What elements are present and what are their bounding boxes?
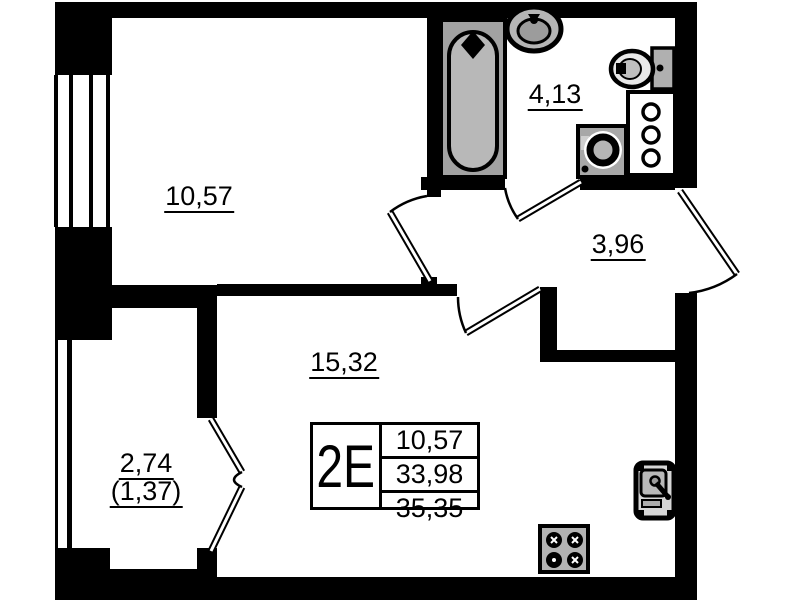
wall-balcony-bottom	[110, 569, 197, 577]
shelf-column-icon	[628, 92, 675, 175]
wall-left-top-block	[55, 2, 112, 75]
floor-plan: 10,57 4,13 3,96 15,32 2,74 (1,37) 2E 10,…	[0, 0, 799, 600]
room-label-living: 15,32	[309, 349, 379, 379]
wall-bedroom-bathroom	[427, 14, 441, 197]
bathroom-door	[505, 182, 581, 219]
walls	[55, 2, 697, 600]
bathtub-icon	[441, 20, 505, 177]
room-label-bedroom: 10,57	[164, 183, 234, 213]
room-label-balcony-reduced: (1,37)	[110, 478, 183, 508]
unit-area-values: 10,57 33,98 35,35	[382, 425, 477, 507]
wall-top	[55, 2, 697, 18]
wall-right-lower	[675, 293, 697, 600]
washing-machine-icon	[578, 126, 626, 177]
room-label-bathroom: 4,13	[528, 81, 583, 111]
unit-area-living-rooms: 10,57	[382, 425, 477, 456]
wall-left-bottom-block	[55, 548, 110, 600]
kitchen-sink-icon	[636, 463, 674, 518]
wall-hall-living-vertical	[540, 287, 557, 362]
unit-area-total: 35,35	[382, 490, 477, 524]
balcony-glazing	[55, 340, 72, 548]
living-room-door	[458, 289, 540, 333]
unit-type-label: 2E	[317, 432, 376, 501]
unit-area-without-balcony: 33,98	[382, 456, 477, 490]
unit-type-cell: 2E	[313, 425, 382, 507]
wall-hall-living-horizontal	[557, 350, 675, 362]
wall-balcony-living-upper	[197, 297, 217, 418]
wall-right-upper	[675, 2, 697, 188]
room-label-hallway: 3,96	[591, 231, 646, 261]
wall-bottom	[55, 577, 697, 600]
wall-left-mid-block	[55, 227, 112, 340]
toilet-icon	[611, 48, 674, 89]
wash-basin-icon	[507, 7, 561, 51]
entrance-door	[680, 191, 737, 293]
stove-icon	[540, 526, 588, 572]
unit-summary-table: 2E 10,57 33,98 35,35	[310, 422, 480, 510]
balcony-french-door	[211, 419, 242, 551]
bedroom-window	[54, 75, 110, 227]
bedroom-door	[390, 196, 430, 281]
